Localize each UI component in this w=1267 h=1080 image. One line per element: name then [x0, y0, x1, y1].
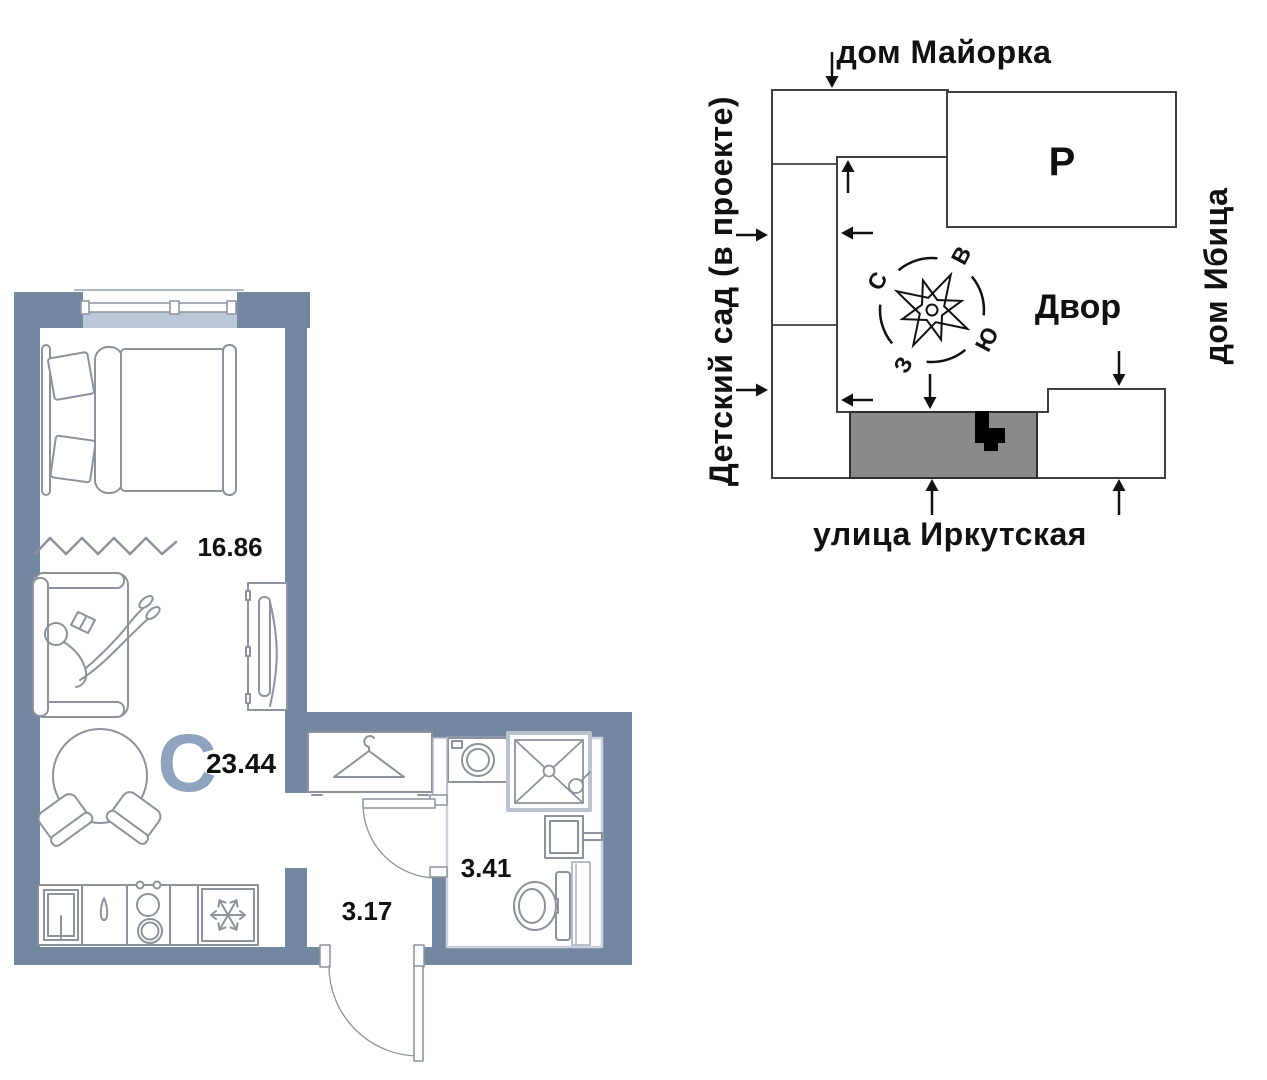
- highlighted-building: [850, 412, 1037, 478]
- bathroom-area-label: 3.41: [461, 855, 512, 881]
- arrow-right-icon: [736, 229, 768, 242]
- kitchen-icon: [38, 882, 258, 946]
- parking-label: Р: [1049, 142, 1076, 182]
- bed-icon: [42, 345, 236, 495]
- arrow-down-icon: [1113, 351, 1126, 386]
- arrow-up-icon: [926, 479, 939, 515]
- hallway-area-label: 3.17: [342, 898, 393, 924]
- arrow-up-icon: [1113, 479, 1126, 515]
- street-label: улица Иркутская: [813, 518, 1087, 550]
- window: [75, 290, 243, 328]
- room-area-label: 16.86: [197, 534, 262, 560]
- drop-icon: [101, 898, 107, 920]
- neighbor-house-right-label: дом Ибица: [1200, 188, 1232, 365]
- arrow-right-icon: [736, 384, 768, 397]
- site-plan: С В Ю З: [736, 52, 1176, 515]
- floor-plan: [14, 290, 632, 1061]
- compass-east-label: В: [946, 242, 977, 269]
- arrow-left-icon: [841, 227, 873, 240]
- compass-icon: С В Ю З: [833, 213, 1031, 407]
- total-area-label: 23.44: [206, 750, 276, 778]
- courtyard-label: Двор: [1035, 290, 1121, 324]
- washing-machine-icon: [448, 738, 507, 782]
- sofa-icon: [33, 573, 128, 717]
- neighbor-house-top-label: дом Майорка: [837, 36, 1052, 68]
- bathroom-sink-icon: [545, 816, 602, 858]
- shower-icon: [508, 733, 590, 810]
- entry-door: [320, 945, 424, 1061]
- compass-south-label: Ю: [970, 323, 1004, 356]
- arrow-left-icon: [841, 394, 873, 407]
- radiator-zigzag-icon: [35, 538, 176, 554]
- toilet-icon: [514, 862, 590, 945]
- arrow-down-icon: [924, 374, 937, 409]
- kindergarten-label: Детский сад (в проекте): [705, 96, 737, 486]
- wardrobe-icon: [308, 732, 432, 795]
- apartment-plan-page: С В Ю З дом Майорка Детский сад (в проек…: [0, 0, 1267, 1080]
- tv-icon: [246, 583, 287, 710]
- arrow-up-icon: [842, 160, 855, 193]
- compass-north-label: С: [862, 267, 893, 294]
- kitchen-sink-icon: [44, 890, 78, 940]
- compass-west-label: З: [888, 352, 918, 377]
